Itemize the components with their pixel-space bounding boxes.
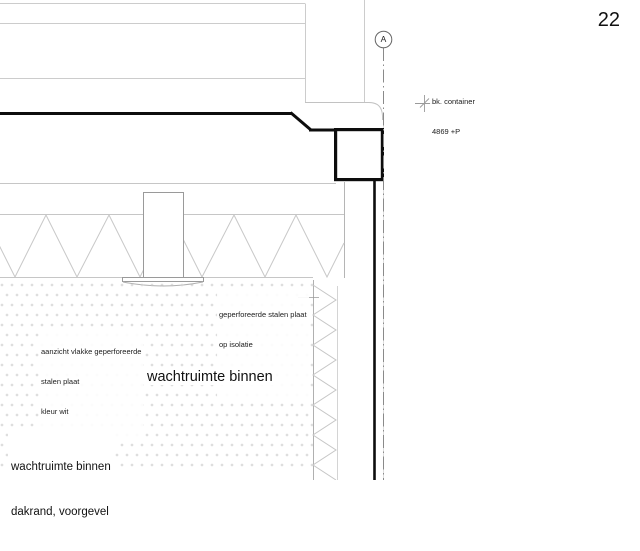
steel-tube-profile <box>336 130 383 180</box>
cladding-lines <box>0 0 365 102</box>
section-marker-label: A <box>375 31 392 48</box>
roof-penetration-column <box>123 193 204 287</box>
drawing-title-line2: dakrand, voorgevel <box>11 505 111 520</box>
sheet-number: 22 <box>598 9 620 32</box>
view-annotation-line3: kleur wit <box>41 407 141 417</box>
view-annotation: aanzicht vlakke geperforeerde stalen pla… <box>39 327 143 437</box>
view-annotation-line1: aanzicht vlakke geperforeerde <box>41 347 141 357</box>
level-annotation-line2: 4869 +P <box>432 127 475 137</box>
drawing-title: wachtruimte binnen dakrand, voorgevel <box>8 429 114 551</box>
drawing-title-line1: wachtruimte binnen <box>11 460 111 475</box>
view-annotation-line2: stalen plaat <box>41 377 141 387</box>
chevron-band <box>313 285 338 480</box>
plate-annotation-line1: geperforeerde stalen plaat <box>219 310 307 320</box>
level-annotation: bk. container 4869 +P <box>430 77 477 157</box>
cad-detail-drawing: 22 A bk. container 4869 +P geperforeerde… <box>0 0 640 480</box>
plate-annotation-line2: op isolatie <box>219 340 307 350</box>
room-label: wachtruimte binnen <box>144 369 276 385</box>
level-annotation-line1: bk. container <box>432 97 475 107</box>
